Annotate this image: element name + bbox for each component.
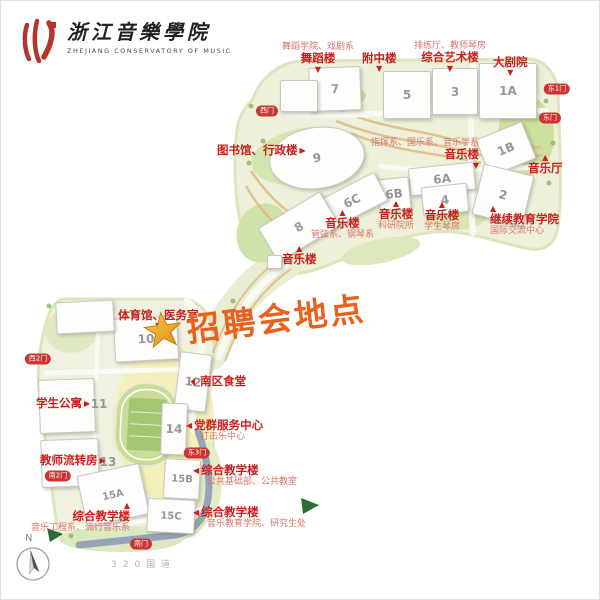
map-label: ▲音乐楼管弦系、钢琴系: [311, 209, 374, 241]
school-name: 浙江音樂學院: [67, 17, 232, 47]
map-label-main: 综合教学楼: [73, 510, 131, 523]
map-label: 指挥系、国乐系、音乐学系音乐楼▼: [371, 138, 479, 170]
map-label: 教师流转房▶: [40, 454, 106, 467]
compass: N: [9, 533, 57, 589]
building-number: 15B: [171, 473, 193, 485]
building-number: 11: [91, 397, 108, 411]
pointer-triangle-icon: ▼: [315, 66, 321, 74]
map-label-main: 舞蹈楼: [301, 52, 336, 65]
map-label-main: 学生公寓: [36, 397, 82, 410]
building-number: 8: [292, 219, 306, 235]
building-number: 7: [331, 82, 340, 96]
map-label-sub: 公共基础部、公共教室: [207, 477, 297, 487]
pointer-triangle-icon: ◀: [193, 467, 199, 475]
building-number: 1B: [495, 139, 516, 159]
star-icon: [141, 308, 186, 353]
map-label-main: 音乐楼: [425, 209, 460, 222]
pointer-triangle-icon: ▼: [473, 162, 479, 170]
school-logo: 浙江音樂學院 ZHEJIANG CONSERVATORY OF MUSIC: [21, 17, 232, 63]
map-label: 图书馆、行政楼▶: [217, 144, 306, 157]
map-label-sub: 音乐教育学院、研究生处: [207, 519, 306, 529]
gate-marker: 南2门: [45, 471, 71, 482]
map-label-sub: 学生琴房: [424, 222, 460, 232]
map-label: ▲音乐楼科研院所: [378, 200, 414, 232]
building-number: 15C: [160, 510, 182, 522]
map-label: ◀综合教学楼音乐教育学院、研究生处: [193, 506, 306, 530]
map-label: ▲音乐厅: [528, 154, 563, 175]
map-label-sub: 管弦系、钢琴系: [311, 230, 374, 240]
building-15C: 15C: [146, 498, 196, 534]
gate-marker: 南门: [130, 539, 152, 550]
school-name-en: ZHEJIANG CONSERVATORY OF MUSIC: [67, 47, 232, 55]
gate-marker: 西门: [256, 106, 278, 117]
seal-icon: [21, 17, 59, 63]
compass-icon: [9, 533, 57, 585]
map-label-main: 党群服务中心: [194, 419, 263, 432]
pointer-triangle-icon: ◀: [193, 509, 199, 517]
map-label-main: 音乐楼: [325, 217, 360, 230]
map-label: ▲综合教学楼音乐工程系、流行音乐系: [31, 502, 130, 534]
map-label-main: 图书馆、行政楼: [217, 144, 298, 157]
pointer-triangle-icon: ▶: [100, 457, 106, 465]
campus-map-page: 浙江音樂學院 ZHEJIANG CONSERVATORY OF MUSIC 75…: [0, 0, 600, 600]
pointer-triangle-icon: ◤: [190, 377, 200, 387]
map-label: 附中楼▼: [362, 52, 397, 73]
building-block: [280, 80, 318, 112]
map-label-main: 音乐楼: [379, 208, 414, 221]
pointer-triangle-icon: ▼: [447, 65, 453, 73]
map-label-main: 继续教育学院: [490, 213, 559, 226]
building-number: 14: [165, 422, 182, 437]
gate-marker: 东1门: [544, 84, 570, 95]
map-label-main: 音乐楼: [282, 253, 317, 266]
map-label: ▲继续教育学院国际交流中心: [490, 205, 559, 237]
building-number: 15A: [101, 487, 124, 502]
compass-north-label: N: [25, 533, 32, 544]
map-label: 大剧院▼: [493, 56, 528, 77]
pointer-triangle-icon: ▼: [376, 65, 382, 73]
map-label-main: 综合教学楼: [201, 506, 259, 519]
building-number: 5: [403, 88, 411, 102]
building-number: 3: [451, 85, 459, 99]
gate-marker: 西2门: [25, 354, 51, 365]
map-label-main: 音乐楼: [445, 148, 480, 161]
pointer-triangle-icon: ▶: [84, 400, 90, 408]
map-label-main: 教师流转房: [40, 454, 98, 467]
map-label-main: 音乐厅: [528, 162, 563, 175]
map-label: 排练厅、教师琴房综合艺术楼▼: [414, 41, 486, 73]
building-number: 9: [312, 150, 322, 165]
map-label-sub: 科研院所: [378, 221, 414, 231]
gate-marker: 东门: [539, 113, 561, 124]
building-number: 2: [497, 187, 508, 203]
map-label: ◀党群服务中心打击乐中心: [186, 419, 263, 443]
building-14: 14: [160, 403, 188, 456]
map-label: 学生公寓▶: [36, 397, 90, 410]
map-label: ▲音乐楼学生琴房: [424, 201, 460, 233]
map-label-sub: 音乐工程系、流行音乐系: [31, 523, 130, 533]
pointer-triangle-icon: ◀: [186, 422, 192, 430]
building-block: [267, 255, 282, 269]
map-label-main: 综合艺术楼: [421, 51, 479, 64]
map-label: ◀综合教学楼公共基础部、公共教室: [193, 464, 297, 488]
map-label: 舞蹈学院、戏剧系舞蹈楼▼: [282, 42, 354, 74]
building-number: 1A: [499, 84, 517, 98]
map-label-sub: 打击乐中心: [200, 432, 245, 442]
building-3: 3: [432, 68, 478, 115]
pointer-triangle-icon: ▼: [507, 69, 513, 77]
building-block: [55, 300, 115, 335]
building-5: 5: [383, 71, 431, 119]
map-label-main: 南区食堂: [200, 375, 246, 388]
highway-label: 320国道: [111, 557, 176, 570]
map-label-sub: 国际交流中心: [490, 226, 544, 236]
gate-marker: 东3门: [184, 448, 210, 459]
pointer-triangle-icon: ▶: [300, 147, 306, 155]
map-label: ▲音乐楼: [282, 245, 317, 266]
map-label-main: 综合教学楼: [201, 464, 259, 477]
map-label: ◤南区食堂: [192, 375, 246, 388]
